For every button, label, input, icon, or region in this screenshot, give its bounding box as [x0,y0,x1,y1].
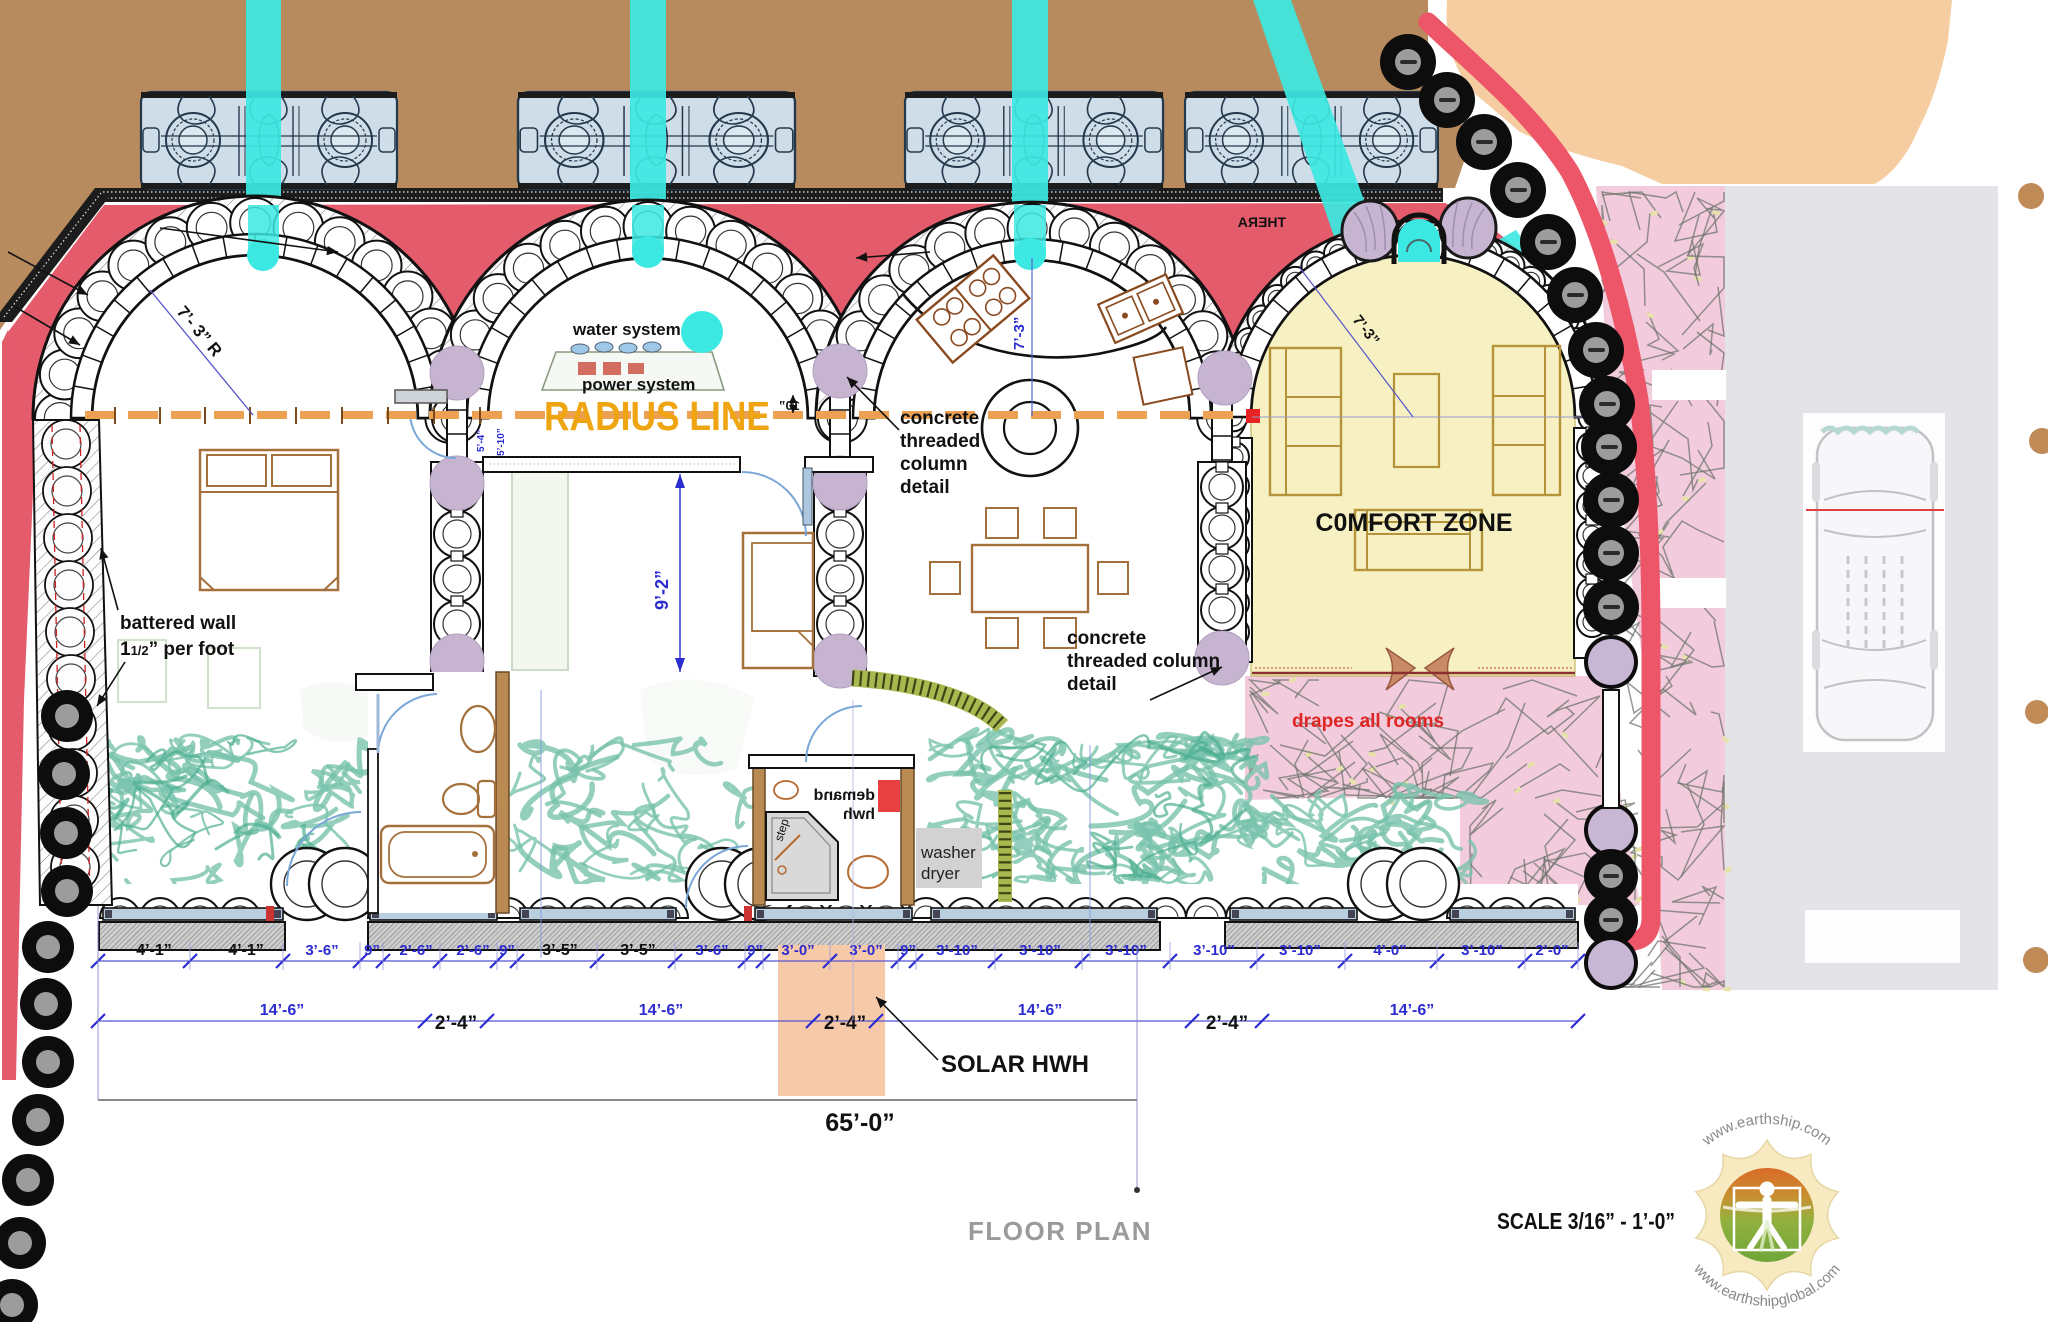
svg-text:2’-4”: 2’-4” [824,1013,866,1034]
svg-text:threaded column: threaded column [1067,651,1220,672]
svg-text:3’-6”: 3’-6” [305,942,338,959]
svg-text:THERA: THERA [1238,214,1286,230]
svg-text:2’-4”: 2’-4” [435,1013,477,1034]
svg-text:3’-5”: 3’-5” [542,942,578,959]
svg-text:battered wall: battered wall [120,613,236,634]
svg-text:demand: demand [814,787,875,804]
svg-text:concrete: concrete [1067,628,1146,649]
svg-text:5’-4”: 5’-4” [476,430,487,452]
svg-text:14’-6”: 14’-6” [1390,1002,1434,1019]
svg-text:3’-6”: 3’-6” [695,942,728,959]
svg-text:9”: 9” [499,942,515,959]
svg-text:SCALE 3/16” - 1’-0”: SCALE 3/16” - 1’-0” [1497,1208,1675,1234]
svg-text:4’-1”: 4’-1” [228,942,264,959]
svg-text:3’-0”: 3’-0” [781,942,814,959]
svg-text:3’-10”: 3’-10” [1105,942,1147,959]
svg-text:3’-10”: 3’-10” [1019,942,1061,959]
svg-text:14’-6”: 14’-6” [260,1002,304,1019]
svg-text:C0MFORT ZONE: C0MFORT ZONE [1315,509,1512,537]
svg-text:9’-2”: 9’-2” [652,570,672,610]
svg-text:detail: detail [1067,674,1117,695]
svg-text:3’-10”: 3’-10” [1193,942,1235,959]
svg-text:9”: 9” [747,942,763,959]
svg-text:10”: 10” [779,398,800,413]
svg-text:14’-6”: 14’-6” [1018,1002,1062,1019]
svg-text:3’-0”: 3’-0” [849,942,882,959]
svg-text:threaded: threaded [900,431,980,452]
svg-text:2’-6”: 2’-6” [399,942,432,959]
svg-text:7’-3”: 7’-3” [1011,317,1028,350]
svg-text:65’-0”: 65’-0” [825,1109,894,1137]
svg-text:4’-0”: 4’-0” [1373,942,1406,959]
svg-text:3’-10”: 3’-10” [936,942,978,959]
svg-text:2’-4”: 2’-4” [1206,1013,1248,1034]
svg-text:11/2” per foot: 11/2” per foot [120,639,235,660]
svg-text:14’-6”: 14’-6” [639,1002,683,1019]
svg-text:9”: 9” [364,942,380,959]
svg-text:5’-10”: 5’-10” [496,428,507,456]
svg-text:concrete: concrete [900,408,979,429]
svg-text:3’-5”: 3’-5” [620,942,656,959]
svg-text:FLOOR PLAN: FLOOR PLAN [968,1216,1152,1246]
svg-text:3’-10”: 3’-10” [1279,942,1321,959]
svg-text:3’-10”: 3’-10” [1461,942,1503,959]
svg-text:water system: water system [572,320,681,339]
svg-text:hwh: hwh [843,806,875,823]
svg-text:9”: 9” [900,942,916,959]
svg-text:2’-0”: 2’-0” [1535,942,1568,959]
svg-text:2’-6”: 2’-6” [456,942,489,959]
svg-text:SOLAR HWH: SOLAR HWH [941,1051,1089,1078]
svg-text:power system: power system [582,375,695,394]
svg-text:washer: washer [920,843,976,862]
svg-text:dryer: dryer [921,864,960,883]
svg-text:RADIUS LINE: RADIUS LINE [544,393,770,439]
svg-text:drapes all rooms: drapes all rooms [1292,711,1444,732]
svg-text:column: column [900,454,968,475]
svg-text:4’-1”: 4’-1” [136,942,172,959]
svg-text:detail: detail [900,477,950,498]
